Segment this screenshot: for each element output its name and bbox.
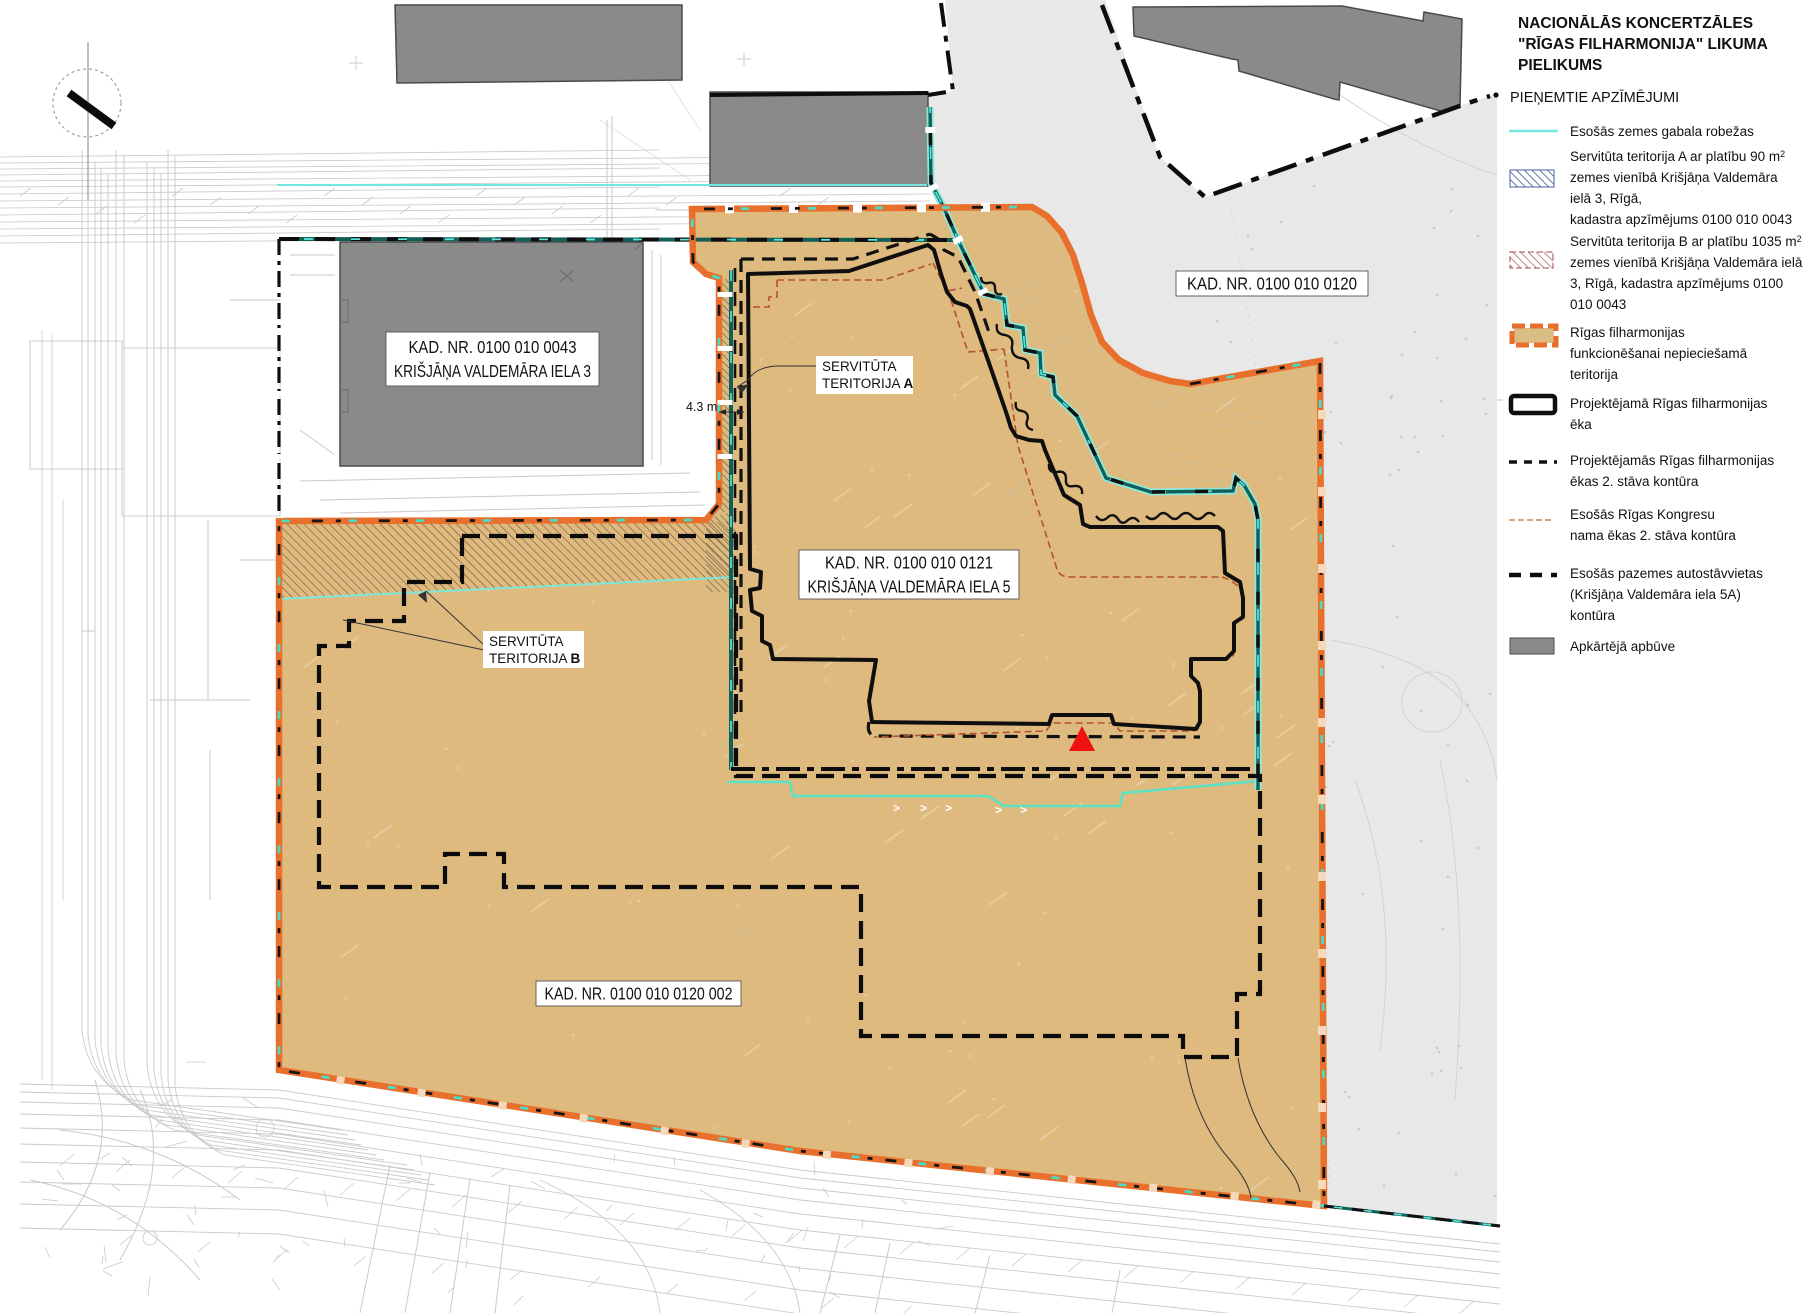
svg-text:>: > — [995, 803, 1002, 817]
svg-text:Servitūta teritorija B ar plat: Servitūta teritorija B ar platību 1035 m… — [1570, 234, 1802, 249]
svg-text:>: > — [893, 801, 900, 815]
svg-text:TERITORIJA B: TERITORIJA B — [489, 651, 581, 666]
svg-text:Projektējamās Rīgas filharmoni: Projektējamās Rīgas filharmonijas — [1570, 453, 1774, 468]
svg-text:PIELIKUMS: PIELIKUMS — [1518, 57, 1602, 74]
svg-text:>: > — [945, 801, 952, 815]
svg-text:>: > — [920, 801, 927, 815]
svg-text:Esošās zemes gabala robežas: Esošās zemes gabala robežas — [1570, 124, 1754, 139]
svg-text:KAD. NR. 0100 010 0120: KAD. NR. 0100 010 0120 — [1187, 274, 1357, 294]
svg-text:010 0043: 010 0043 — [1570, 297, 1626, 312]
svg-text:Projektējamā Rīgas filharmonij: Projektējamā Rīgas filharmonijas — [1570, 396, 1768, 411]
svg-text:NACIONĀLĀS KONCERTZĀLES: NACIONĀLĀS KONCERTZĀLES — [1518, 15, 1753, 32]
svg-text:ēka: ēka — [1570, 417, 1592, 432]
svg-text:4.3 m: 4.3 m — [686, 400, 717, 414]
svg-text:ielā 3, Rīgā,: ielā 3, Rīgā, — [1570, 191, 1642, 206]
svg-text:kontūra: kontūra — [1570, 608, 1616, 623]
svg-text:Rīgas filharmonijas: Rīgas filharmonijas — [1570, 325, 1685, 340]
svg-text:Apkārtējā apbūve: Apkārtējā apbūve — [1570, 639, 1675, 654]
svg-text:teritorija: teritorija — [1570, 367, 1619, 382]
svg-text:ēkas 2. stāva kontūra: ēkas 2. stāva kontūra — [1570, 474, 1699, 489]
svg-text:Esošās pazemes autostāvvietas: Esošās pazemes autostāvvietas — [1570, 566, 1763, 581]
svg-text:3, Rīgā, kadastra apzīmējums 0: 3, Rīgā, kadastra apzīmējums 0100 — [1570, 276, 1783, 291]
svg-text:KAD. NR. 0100 010 0043: KAD. NR. 0100 010 0043 — [409, 337, 577, 357]
svg-text:KRIŠJĀŅA VALDEMĀRA IELA 5: KRIŠJĀŅA VALDEMĀRA IELA 5 — [808, 576, 1011, 597]
svg-text:SERVITŪTA: SERVITŪTA — [822, 359, 897, 374]
svg-text:TERITORIJA A: TERITORIJA A — [822, 376, 914, 391]
svg-text:Servitūta teritorija A ar plat: Servitūta teritorija A ar platību 90 m2 — [1570, 149, 1785, 164]
svg-text:Esošās Rīgas Kongresu: Esošās Rīgas Kongresu — [1570, 507, 1715, 522]
svg-text:>: > — [1020, 803, 1027, 817]
svg-text:"RĪGAS FILHARMONIJA" LIKUMA: "RĪGAS FILHARMONIJA" LIKUMA — [1518, 36, 1768, 53]
svg-text:zemes vienībā Krišjāņa Valdemā: zemes vienībā Krišjāņa Valdemāra — [1570, 170, 1778, 185]
svg-text:funkcionēšanai nepieciešamā: funkcionēšanai nepieciešamā — [1570, 346, 1748, 361]
svg-text:(Krišjāņa Valdemāra iela 5A): (Krišjāņa Valdemāra iela 5A) — [1570, 587, 1741, 602]
svg-text:kadastra apzīmējums 0100 010 0: kadastra apzīmējums 0100 010 0043 — [1570, 212, 1792, 227]
svg-text:KRIŠJĀŅA VALDEMĀRA IELA 3: KRIŠJĀŅA VALDEMĀRA IELA 3 — [394, 360, 591, 381]
svg-text:PIEŅEMTIE APZĪMĒJUMI: PIEŅEMTIE APZĪMĒJUMI — [1510, 90, 1679, 106]
svg-text:KAD. NR. 0100 010 0120 002: KAD. NR. 0100 010 0120 002 — [545, 984, 733, 1004]
svg-text:nama ēkas 2. stāva kontūra: nama ēkas 2. stāva kontūra — [1570, 528, 1736, 543]
svg-text:zemes vienībā Krišjāņa Valdemā: zemes vienībā Krišjāņa Valdemāra ielā — [1570, 255, 1803, 270]
svg-text:KAD. NR. 0100 010 0121: KAD. NR. 0100 010 0121 — [825, 553, 993, 573]
svg-text:SERVITŪTA: SERVITŪTA — [489, 634, 564, 649]
